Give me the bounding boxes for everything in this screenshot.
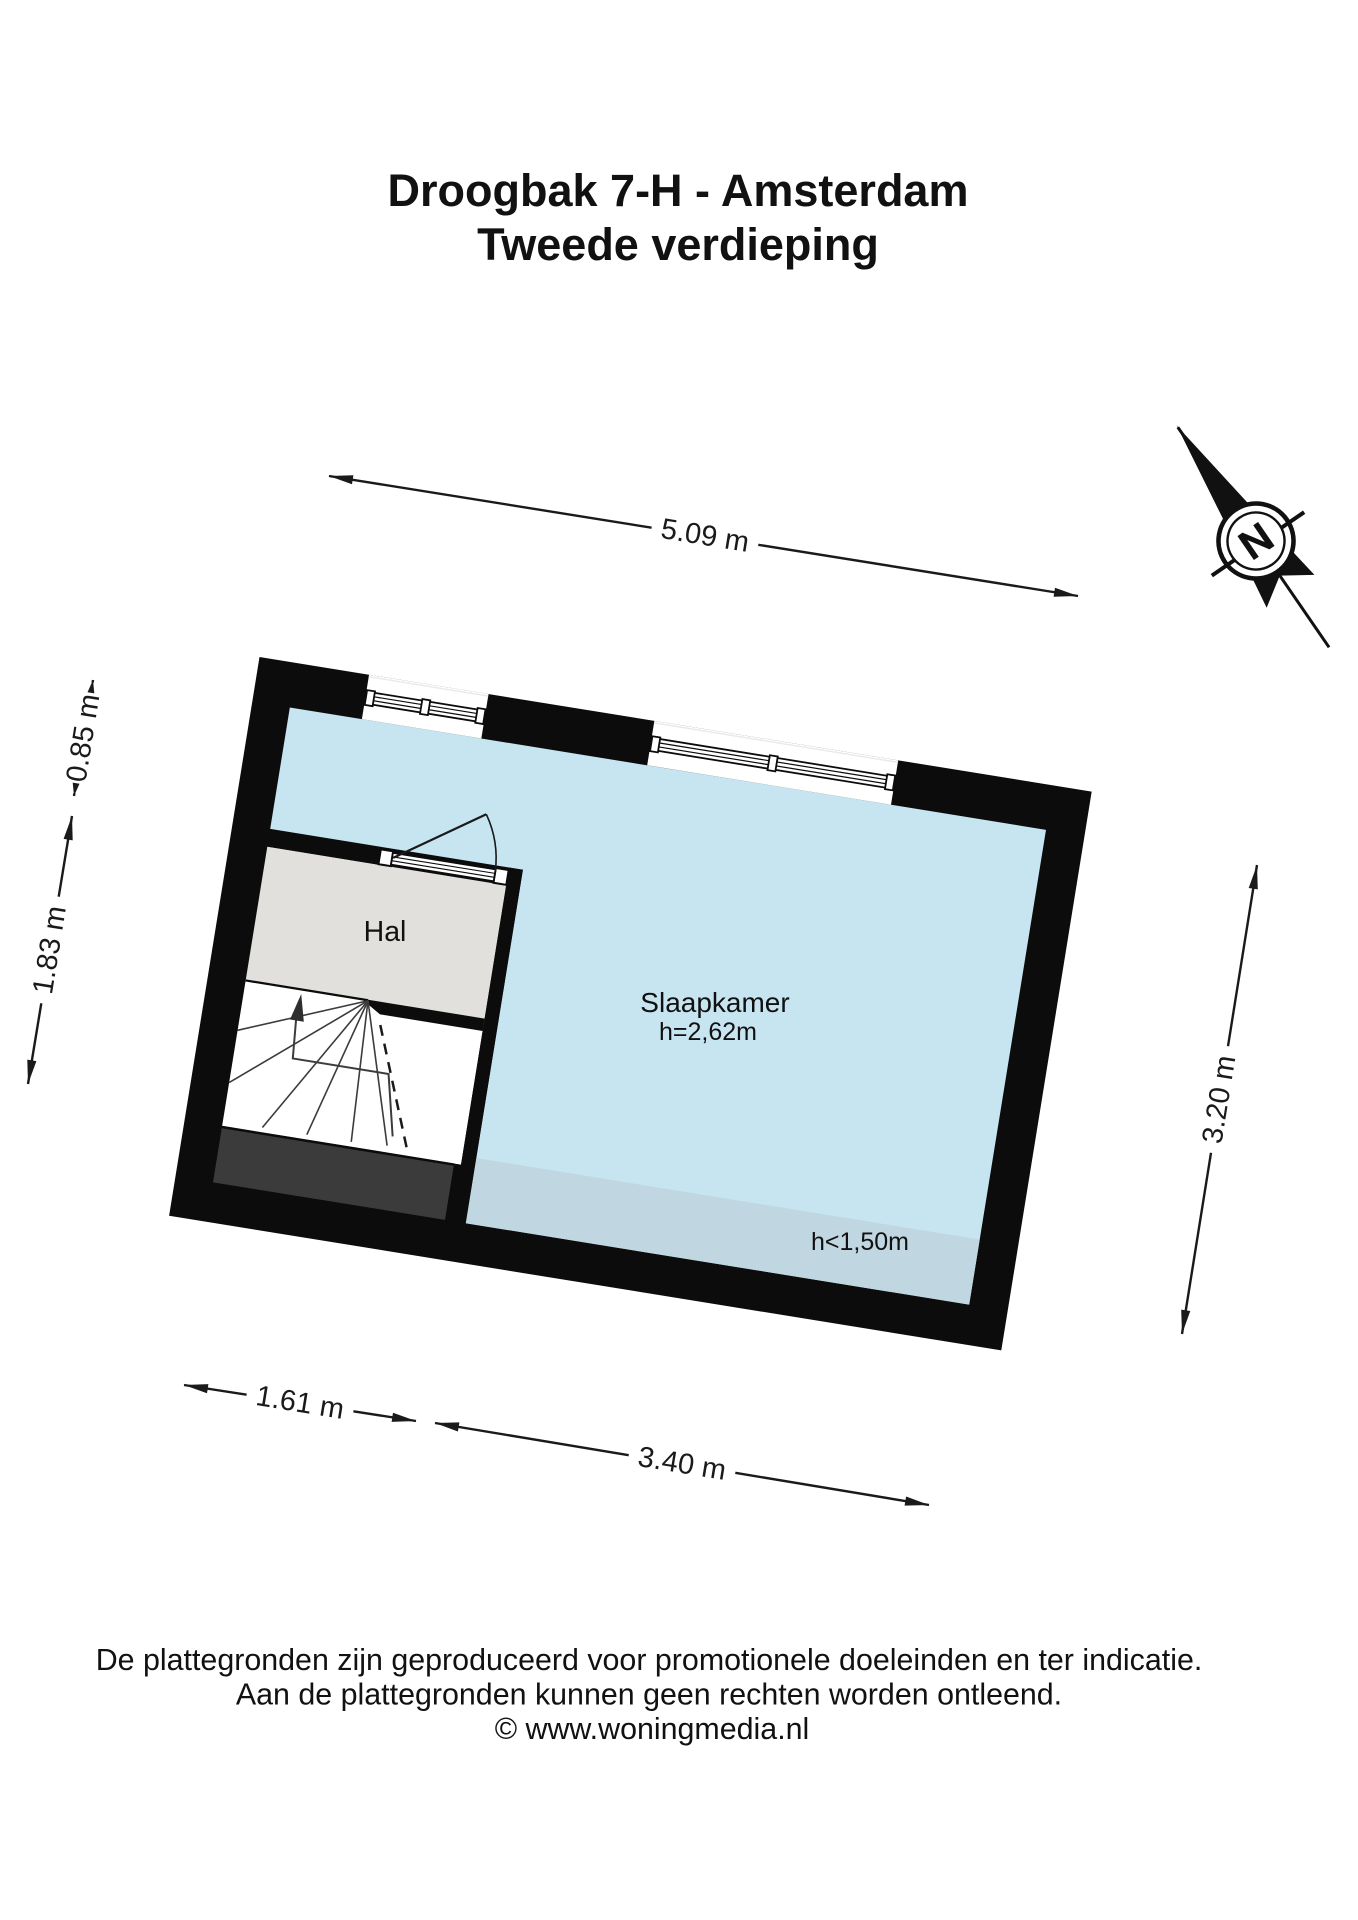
svg-text:h=2,62m: h=2,62m [659,1018,757,1046]
svg-text:Hal: Hal [364,916,407,948]
svg-text:De plattegronden zijn geproduc: De plattegronden zijn geproduceerd voor … [96,1643,1203,1677]
svg-text:h<1,50m: h<1,50m [811,1228,909,1256]
svg-text:Tweede verdieping: Tweede verdieping [477,219,879,270]
svg-text:Droogbak 7-H - Amsterdam: Droogbak 7-H - Amsterdam [388,165,969,216]
svg-text:Aan de plattegronden kunnen ge: Aan de plattegronden kunnen geen rechten… [236,1678,1062,1712]
svg-text:© www.woningmedia.nl: © www.woningmedia.nl [495,1712,810,1746]
svg-text:Slaapkamer: Slaapkamer [640,987,789,1018]
